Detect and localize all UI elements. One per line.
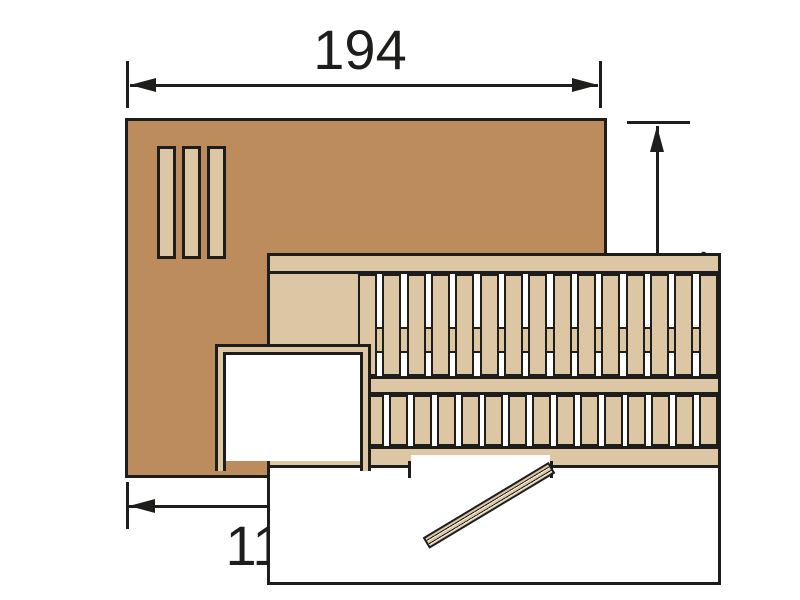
upper-bench-slat <box>431 274 450 376</box>
arrow-left-icon <box>129 499 155 513</box>
lower-bench-slat <box>556 395 575 446</box>
arrow-left-icon <box>130 78 156 92</box>
headrest-board <box>157 146 176 259</box>
lower-bench-slat <box>389 395 408 446</box>
wall-end-cap-left <box>408 461 411 478</box>
upper-bench-slat <box>650 274 669 376</box>
upper-bench-slat <box>699 274 718 376</box>
lower-bench-slat <box>461 395 480 446</box>
lower-bench-slat <box>699 395 718 446</box>
lower-bench-slat <box>508 395 527 446</box>
dim-width-tick-left <box>126 61 129 108</box>
upper-bench-slats <box>358 274 718 376</box>
upper-bench-slat <box>674 274 693 376</box>
lower-bench-slat <box>580 395 599 446</box>
dim-width-line <box>130 84 598 87</box>
upper-bench-slat <box>528 274 547 376</box>
front-bench-frame <box>215 344 371 461</box>
headrest-board <box>207 146 226 259</box>
arrow-up-icon <box>650 126 664 152</box>
arrow-right-icon <box>572 78 598 92</box>
lower-bench-slat <box>627 395 646 446</box>
headrest-board <box>182 146 201 259</box>
front-bench-post-right <box>360 458 371 471</box>
lower-bench-slat <box>604 395 623 446</box>
dim-depth-tick-top <box>627 121 690 124</box>
upper-bench-slat <box>504 274 523 376</box>
lower-bench-slat <box>532 395 551 446</box>
upper-bench-slat <box>382 274 401 376</box>
upper-bench-slat <box>480 274 499 376</box>
lower-bench-slat <box>437 395 456 446</box>
lower-bench-slat <box>651 395 670 446</box>
front-bench-frame-inner <box>223 352 363 461</box>
lower-bench-slat <box>413 395 432 446</box>
sauna-floor-plan-diagram: 194 144 111 <box>0 0 800 600</box>
upper-bench-slat <box>626 274 645 376</box>
front-bench-post-left <box>215 458 226 471</box>
dim-width-label: 194 <box>260 22 460 78</box>
lower-bench-slat <box>675 395 694 446</box>
lower-bench-slat <box>484 395 503 446</box>
upper-bench-slat <box>577 274 596 376</box>
dim-width-tick-right <box>599 61 602 108</box>
upper-bench-slat <box>553 274 572 376</box>
bench-back-rail <box>270 256 718 271</box>
headrest-boards <box>157 146 226 259</box>
upper-bench-slat <box>601 274 620 376</box>
upper-bench-slat <box>407 274 426 376</box>
upper-bench-slat <box>455 274 474 376</box>
